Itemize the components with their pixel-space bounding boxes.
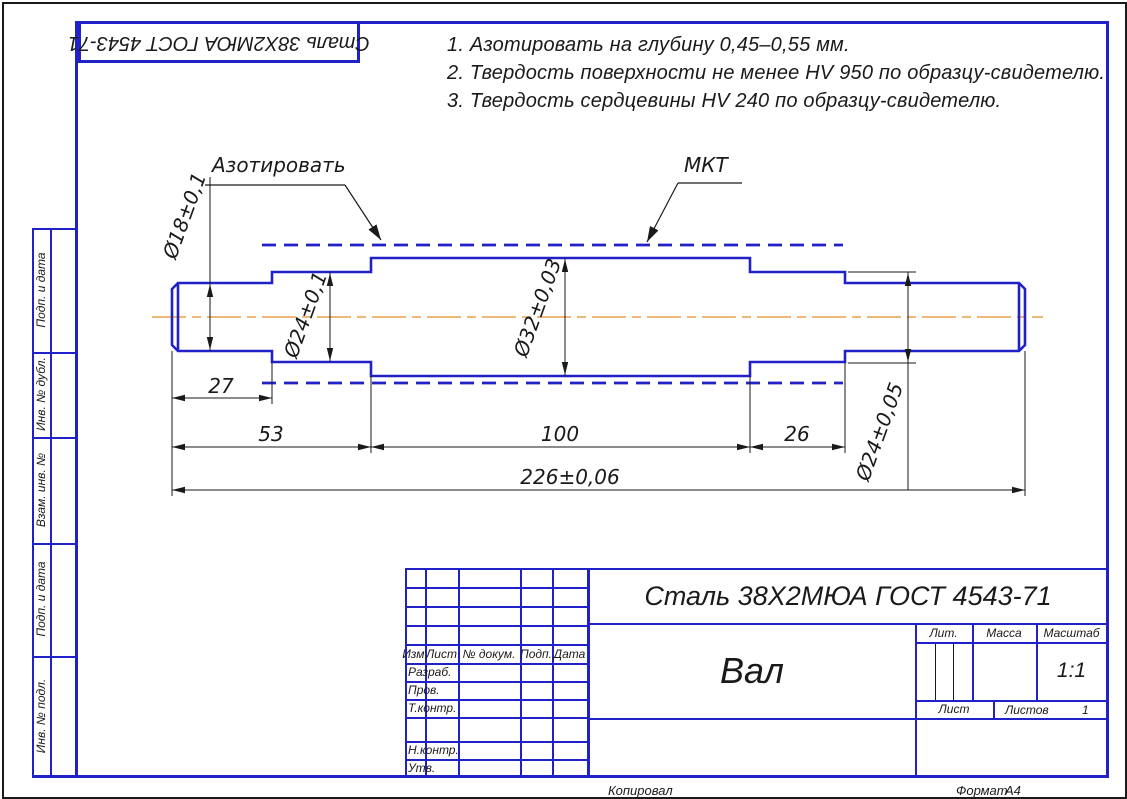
dim-24a: Ø24±0,1: [278, 268, 332, 362]
nitride-leader: [205, 185, 381, 240]
footer-format-value: А4: [1005, 783, 1021, 798]
dim-24b: Ø24±0,05: [850, 379, 908, 484]
tb-sheet-label: Лист: [915, 701, 993, 717]
tb-row-nkontr: Н.контр.: [408, 743, 459, 757]
tb-header-podp: Подп.: [520, 645, 552, 662]
tb-header-doc: № докум.: [458, 645, 520, 662]
nitride-label: Азотировать: [210, 153, 346, 177]
dim-26: 26: [784, 422, 809, 446]
tb-header-list: Лист: [425, 645, 458, 662]
tb-row-razrab: Разраб.: [408, 665, 451, 679]
tb-masshtab-label: Масштаб: [1036, 624, 1107, 642]
tb-v: [552, 568, 554, 776]
tb-sheets-value: 1: [1082, 703, 1089, 717]
tb-part-name: Вал: [589, 625, 915, 717]
shaft-view: Азотировать МКТ: [0, 0, 1127, 799]
footer-copied: Копировал: [608, 783, 673, 798]
tb-h: [405, 625, 587, 627]
dim-32: Ø32±0,03: [508, 255, 566, 360]
tb-v-right-sub: [915, 623, 917, 776]
dim-100: 100: [541, 422, 579, 446]
tb-header-data: Дата: [552, 645, 587, 662]
tb-lit-label: Лит.: [915, 624, 972, 642]
tb-sheets-label: Листов: [1005, 703, 1049, 717]
dim-18: Ø18±0,1: [157, 169, 211, 263]
tb-v-left: [405, 568, 407, 776]
tb-row-utv: Утв.: [408, 761, 435, 775]
tb-h: [405, 587, 587, 589]
dim-27: 27: [208, 374, 234, 398]
tb-sheet-row-bottom: [587, 718, 1107, 720]
tb-h: [405, 717, 587, 719]
tb-v-list-listov: [993, 700, 995, 718]
tb-row-tkontr: Т.контр.: [408, 701, 456, 715]
tb-lit-sub2: [953, 644, 954, 700]
footer-format-label: Формат: [956, 783, 1008, 798]
drawing-sheet: Сталь 38Х2МЮА ГОСТ 4543-71 1. Азотироват…: [0, 0, 1127, 799]
mkt-leader: [647, 183, 742, 242]
mkt-label: МКТ: [684, 153, 729, 177]
tb-lit-sub1: [935, 644, 936, 700]
tb-v: [520, 568, 522, 776]
dim-total: 226±0,06: [520, 465, 619, 489]
tb-h: [405, 606, 587, 608]
tb-header-izm: Изм.: [405, 645, 425, 662]
tb-scale-value: 1:1: [1036, 644, 1107, 698]
tb-row-prov: Пров.: [408, 683, 440, 697]
tb-material: Сталь 38Х2МЮА ГОСТ 4543-71: [589, 570, 1107, 623]
dim-53: 53: [258, 422, 283, 446]
tb-massa-label: Масса: [972, 624, 1036, 642]
